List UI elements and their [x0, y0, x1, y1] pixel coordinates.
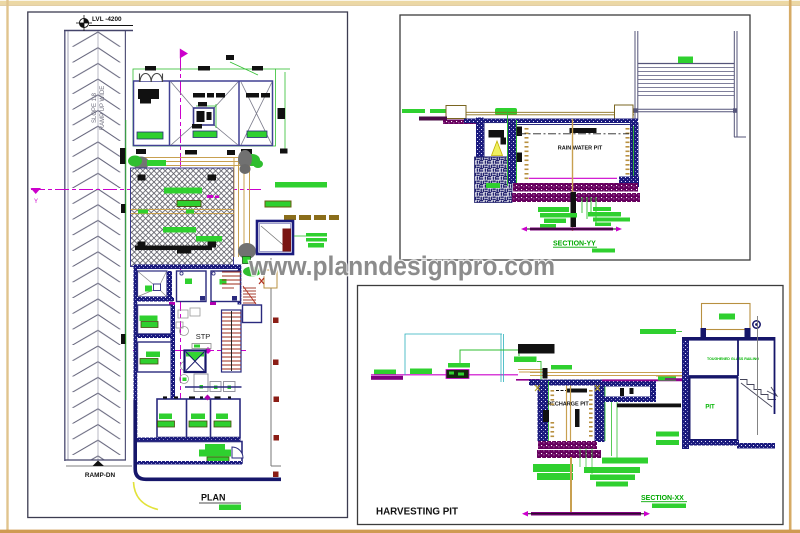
svg-text:www.planndesignpro.com: www.planndesignpro.com — [248, 251, 555, 281]
svg-text:PIT: PIT — [705, 405, 715, 411]
svg-text:RAMP UP WIDE: RAMP UP WIDE — [100, 86, 106, 130]
svg-text:STP: STP — [196, 332, 211, 341]
svg-text:TOUGHENED GLASS RAILING: TOUGHENED GLASS RAILING — [707, 357, 759, 361]
svg-text:SECTION-XX: SECTION-XX — [641, 495, 684, 502]
svg-text:SECTION-YY: SECTION-YY — [553, 241, 596, 248]
svg-text:PLAN: PLAN — [201, 493, 226, 503]
svg-text:LVL -4200: LVL -4200 — [92, 16, 122, 23]
svg-text:HARVESTING PIT: HARVESTING PIT — [376, 506, 459, 518]
svg-text:SLOPE 1:8: SLOPE 1:8 — [92, 92, 98, 123]
svg-text:Y: Y — [34, 199, 38, 205]
svg-text:RAIN WATER PIT: RAIN WATER PIT — [558, 146, 603, 152]
svg-text:RAMP-DN: RAMP-DN — [85, 472, 116, 479]
